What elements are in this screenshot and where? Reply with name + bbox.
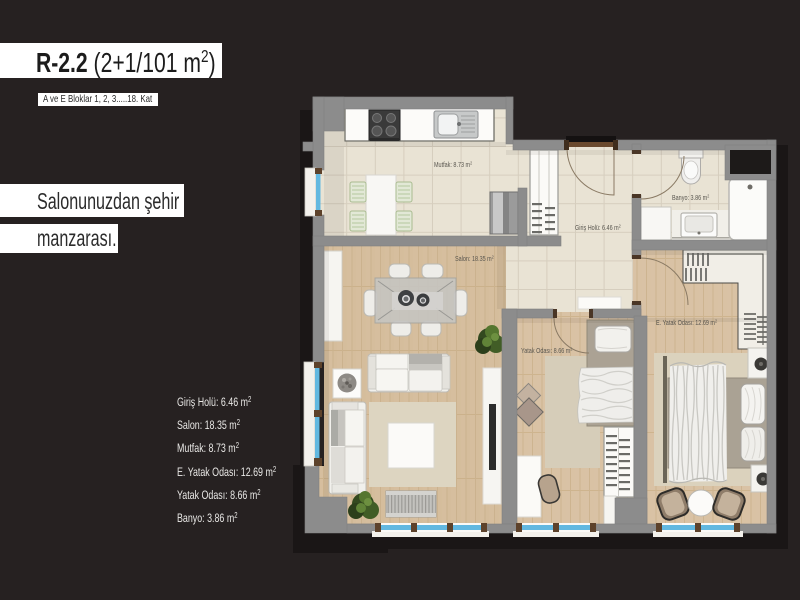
svg-text:Yatak Odası: 8.66 m2: Yatak Odası: 8.66 m2 (177, 489, 261, 503)
svg-text:E. Yatak Odası: 12.69 m2: E. Yatak Odası: 12.69 m2 (177, 466, 276, 480)
svg-text:Mutfak: 8.73 m2: Mutfak: 8.73 m2 (434, 160, 473, 169)
svg-text:Salonunuzdan şehir: Salonunuzdan şehir (37, 189, 180, 214)
svg-text:Banyo: 3.86 m2: Banyo: 3.86 m2 (177, 512, 238, 526)
svg-text:A ve E Bloklar 1, 2, 3.....18.: A ve E Bloklar 1, 2, 3.....18. Kat (43, 93, 153, 104)
svg-text:Mutfak: 8.73 m2: Mutfak: 8.73 m2 (177, 442, 239, 456)
svg-text:Banyo: 3.86 m2: Banyo: 3.86 m2 (672, 193, 710, 202)
svg-text:Giriş Holü: 6.46 m2: Giriş Holü: 6.46 m2 (177, 396, 251, 410)
svg-text:Yatak Odası: 8.66 m2: Yatak Odası: 8.66 m2 (521, 346, 573, 355)
svg-text:Giriş Holü: 6.46 m2: Giriş Holü: 6.46 m2 (575, 223, 621, 232)
svg-text:Salon: 18.35 m2: Salon: 18.35 m2 (455, 254, 494, 263)
svg-text:Salon: 18.35 m2: Salon: 18.35 m2 (177, 419, 240, 433)
svg-text:manzarası.: manzarası. (37, 226, 117, 251)
svg-text:R-2.2 (2+1/101 m2): R-2.2 (2+1/101 m2) (36, 47, 216, 78)
